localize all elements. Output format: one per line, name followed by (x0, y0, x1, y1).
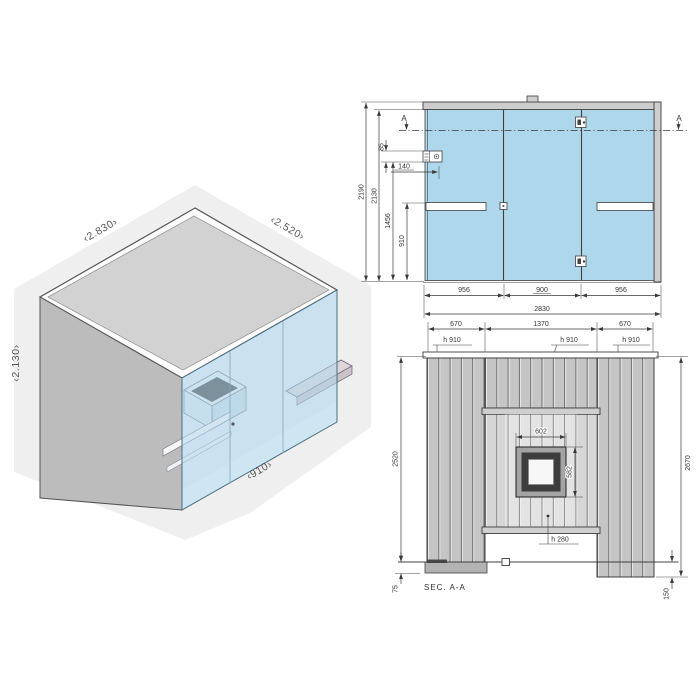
plan-bench-right (597, 203, 653, 211)
elevation-top-dimensions: 670 1370 670 (428, 321, 653, 355)
sauna-technical-drawing: ‹2.830› ‹2.520› ‹2.130› ‹910› A A (0, 0, 700, 700)
plan-bottom-dimensions: 956 900 956 2830 (424, 284, 661, 318)
window-core (529, 460, 554, 485)
door-hinge-top (576, 117, 587, 128)
label-lower-bench-height: h 280 (551, 537, 569, 544)
door-handle (231, 422, 234, 425)
dim-panel-right: 956 (615, 287, 627, 294)
vent-detail (423, 151, 442, 162)
plan-glass-area (425, 110, 654, 281)
iso-height-label: ‹2.130› (10, 344, 22, 381)
glass-fitting (500, 203, 507, 210)
label-bench-height-left: h 910 (443, 337, 461, 344)
plan-roof-tab (527, 96, 538, 102)
left-plinth (425, 562, 487, 573)
plan-left-dimensions: 2190 2130 1456 910 85 (359, 102, 427, 282)
plan-top-wall (423, 102, 661, 110)
lower-rail (482, 527, 600, 534)
center-lintel-panels (485, 358, 597, 408)
right-wall-panels (597, 358, 654, 577)
dim-height-left: 2520 (393, 451, 400, 467)
upper-rail (482, 408, 600, 415)
dim-window-height: 582 (567, 466, 574, 478)
dim-vent-offset: 140 (398, 164, 410, 171)
elevation-view: 670 1370 670 h 910 h 910 h 910 (393, 321, 693, 600)
section-title: SEC. A-A (424, 583, 466, 592)
dim-center-width: 1370 (533, 321, 549, 328)
dim-window-width: 602 (535, 429, 547, 436)
elevation-top-band (423, 352, 658, 358)
dim-vent-height: 85 (379, 143, 386, 151)
dim-left-wall-width: 670 (450, 321, 462, 328)
dim-overall-width: 2830 (534, 306, 550, 313)
label-bench-height-center: h 910 (560, 337, 578, 344)
label-bench-height-right: h 910 (622, 337, 640, 344)
dim-door-width: 900 (536, 287, 548, 294)
dim-overall-depth: 2190 (359, 184, 366, 200)
drawing-sheet: ‹2.830› ‹2.520› ‹2.130› ‹910› A A (0, 0, 700, 700)
dim-inner-depth: 2130 (372, 188, 379, 204)
plan-bench-left (426, 203, 486, 211)
dim-bench-depth: 910 (399, 235, 406, 247)
dim-plinth-height: 75 (393, 585, 400, 593)
dim-right-wall-width: 670 (619, 321, 631, 328)
section-marker-left: A (401, 114, 407, 130)
plan-view: A A (359, 96, 688, 318)
dim-height-right: 2670 (685, 455, 692, 471)
dim-bench-offset: 1456 (385, 213, 392, 229)
stove-window (516, 447, 566, 497)
door-pivot (502, 559, 510, 566)
plan-right-wall (654, 102, 661, 282)
isometric-view: ‹2.830› ‹2.520› ‹2.130› ‹910› (10, 185, 371, 540)
door-hinge-bottom (576, 256, 587, 267)
section-letter-right: A (676, 114, 682, 123)
dim-foot-height: 150 (664, 588, 671, 600)
left-wall-panels (427, 358, 485, 562)
dim-panel-left: 956 (458, 287, 470, 294)
section-marker-right: A (676, 114, 682, 130)
